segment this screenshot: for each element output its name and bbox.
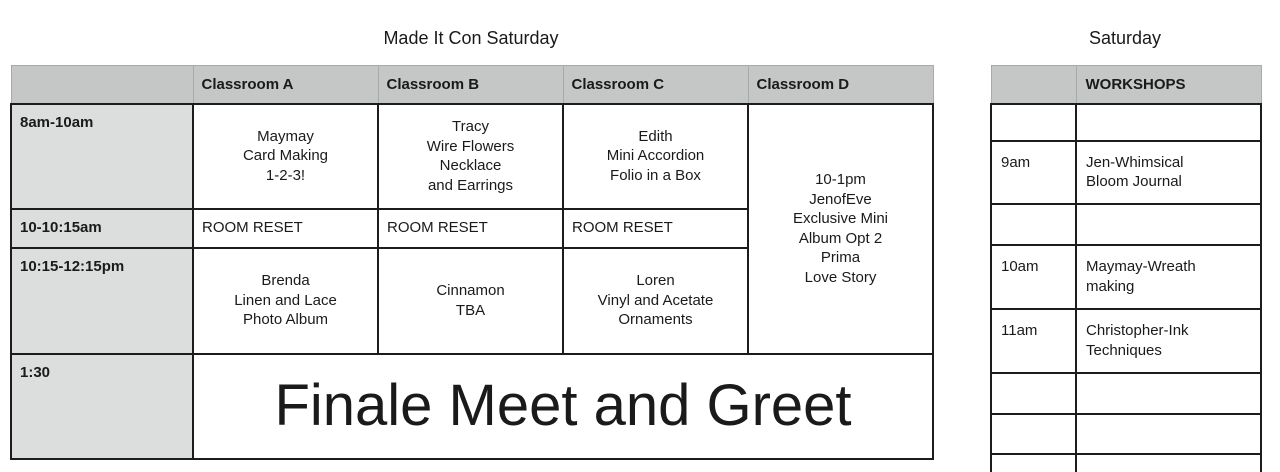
workshops-header-corner bbox=[991, 66, 1076, 104]
schedule-header-classroom-c: Classroom C bbox=[563, 66, 748, 104]
class-cell-loren-vinyl-acetate: Loren Vinyl and Acetate Ornaments bbox=[563, 248, 748, 354]
workshop-row bbox=[991, 414, 1261, 454]
schedule-header-classroom-b: Classroom B bbox=[378, 66, 563, 104]
time-cell-10-1015am: 10-10:15am bbox=[11, 209, 193, 248]
classroom-schedule-table: Classroom A Classroom B Classroom C Clas… bbox=[10, 65, 934, 460]
workshop-row bbox=[991, 454, 1261, 472]
room-reset-cell-a: ROOM RESET bbox=[193, 209, 378, 248]
workshop-time-cell: 9am bbox=[991, 141, 1076, 205]
class-cell-brenda-linen-lace: Brenda Linen and Lace Photo Album bbox=[193, 248, 378, 354]
workshop-item-cell bbox=[1076, 454, 1261, 472]
room-reset-cell-c: ROOM RESET bbox=[563, 209, 748, 248]
left-table-title: Made It Con Saturday bbox=[10, 27, 932, 49]
workshop-time-cell: 10am bbox=[991, 245, 1076, 309]
workshop-item-cell: Jen-Whimsical Bloom Journal bbox=[1076, 141, 1261, 205]
workshop-item-cell: Christopher-Ink Techniques bbox=[1076, 309, 1261, 373]
class-cell-edith-mini-accordion: Edith Mini Accordion Folio in a Box bbox=[563, 104, 748, 209]
workshop-item-cell bbox=[1076, 414, 1261, 454]
workshop-time-cell bbox=[991, 373, 1076, 414]
schedule-header-classroom-a: Classroom A bbox=[193, 66, 378, 104]
finale-meet-and-greet-cell: Finale Meet and Greet bbox=[193, 354, 933, 459]
workshop-row-10am: 10am Maymay-Wreath making bbox=[991, 245, 1261, 309]
workshop-time-cell bbox=[991, 414, 1076, 454]
schedule-row-finale: 1:30 Finale Meet and Greet bbox=[11, 354, 933, 459]
workshop-time-cell bbox=[991, 454, 1076, 472]
schedule-header-row: Classroom A Classroom B Classroom C Clas… bbox=[11, 66, 933, 104]
class-cell-cinnamon-tba: Cinnamon TBA bbox=[378, 248, 563, 354]
workshop-row-11am: 11am Christopher-Ink Techniques bbox=[991, 309, 1261, 373]
room-reset-cell-b: ROOM RESET bbox=[378, 209, 563, 248]
time-cell-8am-10am: 8am-10am bbox=[11, 104, 193, 209]
class-cell-jenofeve-classroom-d: 10-1pm JenofEve Exclusive Mini Album Opt… bbox=[748, 104, 933, 354]
class-cell-tracy-wire-flowers: Tracy Wire Flowers Necklace and Earrings bbox=[378, 104, 563, 209]
workshop-item-cell bbox=[1076, 104, 1261, 141]
workshop-time-cell: 11am bbox=[991, 309, 1076, 373]
workshop-row bbox=[991, 204, 1261, 245]
workshop-time-cell bbox=[991, 204, 1076, 245]
workshop-item-cell bbox=[1076, 373, 1261, 414]
workshop-row-9am: 9am Jen-Whimsical Bloom Journal bbox=[991, 141, 1261, 205]
schedule-header-classroom-d: Classroom D bbox=[748, 66, 933, 104]
class-cell-maymay-card-making: Maymay Card Making 1-2-3! bbox=[193, 104, 378, 209]
workshops-table: WORKSHOPS 9am Jen-Whimsical Bloom Journa… bbox=[990, 65, 1262, 472]
schedule-row-8am: 8am-10am Maymay Card Making 1-2-3! Tracy… bbox=[11, 104, 933, 209]
time-cell-130: 1:30 bbox=[11, 354, 193, 459]
workshop-row bbox=[991, 104, 1261, 141]
workshops-header-row: WORKSHOPS bbox=[991, 66, 1261, 104]
workshop-item-cell bbox=[1076, 204, 1261, 245]
time-cell-1015-1215pm: 10:15-12:15pm bbox=[11, 248, 193, 354]
workshops-header-label: WORKSHOPS bbox=[1076, 66, 1261, 104]
schedule-page: Made It Con Saturday Saturday Classroom … bbox=[0, 0, 1280, 472]
schedule-header-corner bbox=[11, 66, 193, 104]
right-table-title: Saturday bbox=[990, 27, 1260, 49]
workshop-row bbox=[991, 373, 1261, 414]
workshop-time-cell bbox=[991, 104, 1076, 141]
workshop-item-cell: Maymay-Wreath making bbox=[1076, 245, 1261, 309]
